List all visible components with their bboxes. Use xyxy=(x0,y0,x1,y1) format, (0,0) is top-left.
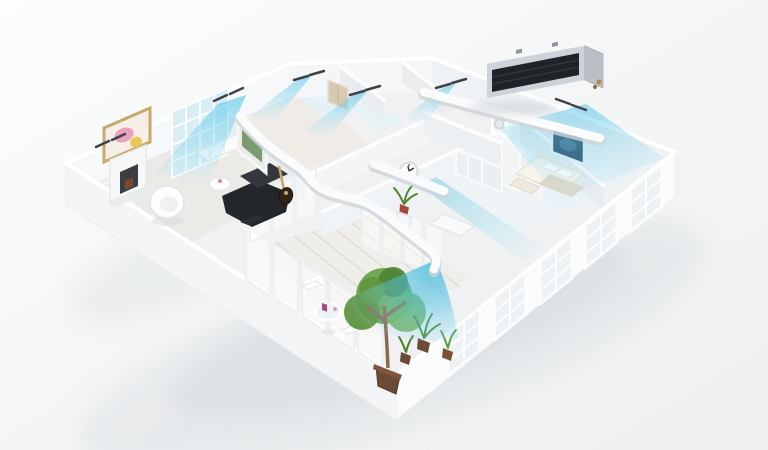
hvac-cutaway-illustration xyxy=(0,0,768,450)
unit-shadow xyxy=(470,101,554,115)
egg-chair xyxy=(150,186,184,226)
copper-pipe xyxy=(593,85,597,89)
coffee-table xyxy=(209,178,231,191)
copper-pipe xyxy=(597,80,602,85)
